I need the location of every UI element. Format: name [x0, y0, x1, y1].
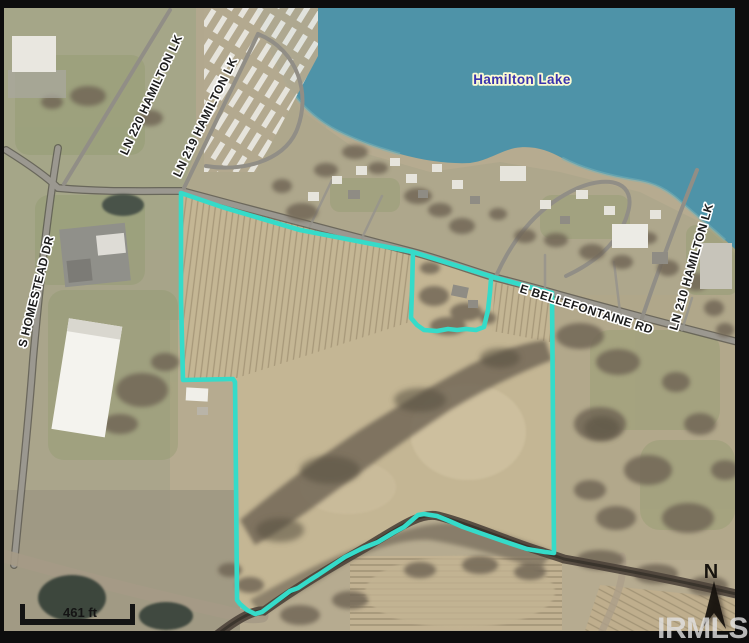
- aerial-map-canvas: Hamilton Lake S HOMESTEAD DR LN 220 HAMI…: [0, 0, 749, 643]
- scale-bar-label: 461 ft: [63, 605, 98, 620]
- label-hamilton-lake: Hamilton Lake: [473, 72, 571, 87]
- aerial-map: Hamilton Lake S HOMESTEAD DR LN 220 HAMI…: [0, 0, 749, 643]
- north-arrow-label: N: [704, 561, 718, 583]
- watermark: IRMLS: [657, 612, 748, 643]
